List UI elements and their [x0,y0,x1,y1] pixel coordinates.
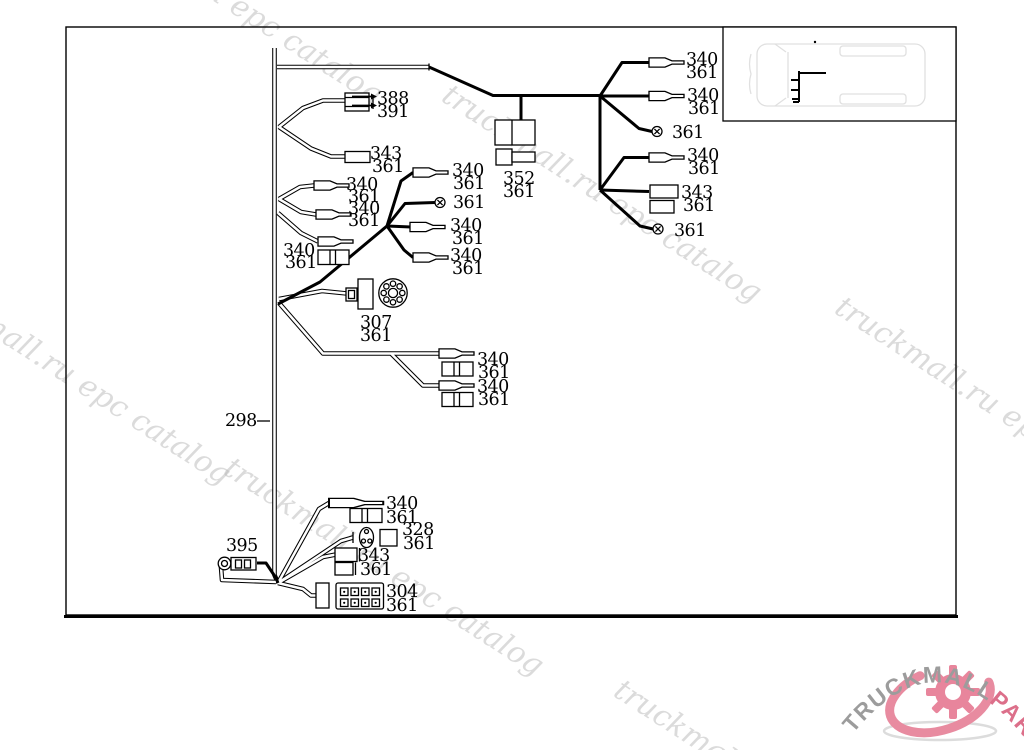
wiring-diagram: truckmall.ru epc catalog truckmall.ru ep… [0,0,1024,750]
part-label: 361 [683,196,715,216]
part-label: 391 [377,102,409,122]
connector-343-bottom [335,548,360,575]
watermark-text: truckmall.ru epc catalog [0,259,237,492]
connector-343-right [650,185,678,213]
part-label: 395 [226,536,258,556]
catalog-page: truckmall.ru epc catalog truckmall.ru ep… [0,0,1024,750]
connector-343-top [345,152,370,163]
part-label: 361 [360,560,392,580]
harness-ref-label: 298 [225,411,257,431]
part-label: 361 [672,123,704,143]
inset-dot [814,41,816,43]
part-label: 361 [285,253,317,273]
part-label: 361 [360,326,392,346]
part-label: 361 [403,534,435,554]
part-label: 361 [688,159,720,179]
connector-304 [316,583,384,609]
truck-location-inset [723,27,956,121]
watermark-text: truckmall.ru epc catalog [829,289,1024,522]
connector-307 [346,279,407,309]
part-label: 361 [386,596,418,616]
part-label: 361 [372,157,404,177]
part-label: 361 [452,259,484,279]
part-label: 361 [453,193,485,213]
logo-text-truckmall: TRUCKMALL [837,661,1000,737]
watermark-text: truckmall.ru epc catalog [57,0,390,112]
part-label: 361 [688,99,720,119]
connector-395 [218,557,256,570]
part-label: 361 [348,211,380,231]
part-label: 361 [503,182,535,202]
part-label: 361 [478,390,510,410]
part-label: 361 [686,63,718,83]
part-label: 361 [453,174,485,194]
part-label: 361 [674,221,706,241]
truckmall-logo: TRUCKMALLPARTS [837,609,1024,745]
connector-352 [495,120,535,165]
